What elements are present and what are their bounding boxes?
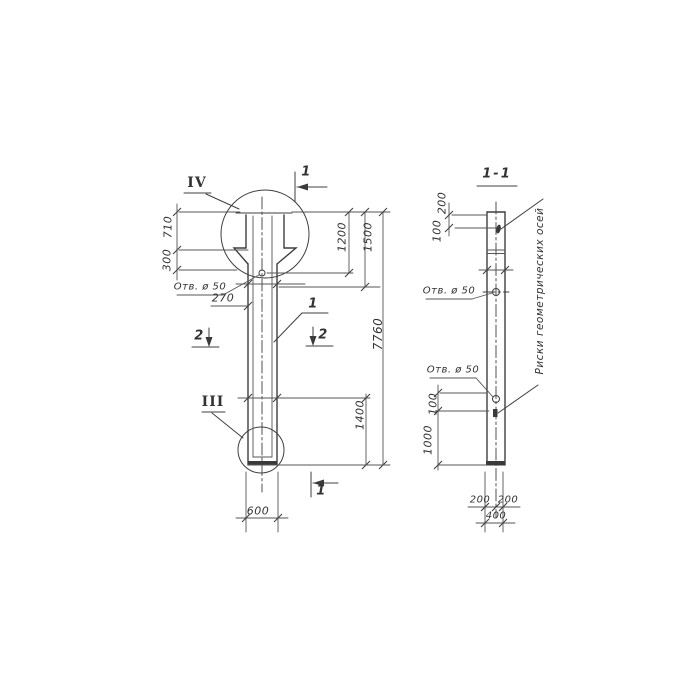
axes-note: Риски геометрических осей [534,208,546,375]
detail-mark-iv: IV [187,175,206,191]
front-view-section-marks [192,172,338,497]
dim-1500: 1500 [362,222,375,252]
dim-100-left: 100 [427,393,440,416]
dim-300: 300 [161,249,174,272]
dim-200-bottom-left: 200 [470,495,491,506]
dim-200-bottom-right: 200 [498,495,519,506]
dim-270: 270 [212,292,235,305]
dim-100-top: 100 [431,220,444,243]
section-cut-2-left-label: 2 [194,329,204,344]
dim-7760: 7760 [371,318,385,351]
section-cut-1-top-label: 1 [301,165,311,180]
technical-drawing: IV III 1 1 2 2 1 710 300 Отв. ø 50 270 1… [0,0,700,700]
drawing-linework [0,0,700,700]
hole-label-lower: Отв. ø 50 [427,365,479,376]
dim-400-bottom: 400 [486,511,507,522]
dim-1200: 1200 [336,222,349,252]
section-cut-2-right-label: 2 [318,328,328,343]
section-cut-1-bottom-label: 1 [316,484,326,499]
front-view-dimensions [173,204,390,532]
dim-200-top: 200 [436,192,449,215]
front-view-column [234,197,370,492]
detail-mark-iii: III [202,394,225,410]
dim-1000-left: 1000 [422,425,435,455]
dim-600: 600 [247,505,270,518]
dim-710: 710 [162,216,175,239]
part-mark-1: 1 [308,297,318,312]
hole-label-upper: Отв. ø 50 [423,286,475,297]
section-view-title: 1-1 [482,167,512,182]
dim-1400: 1400 [354,400,367,430]
